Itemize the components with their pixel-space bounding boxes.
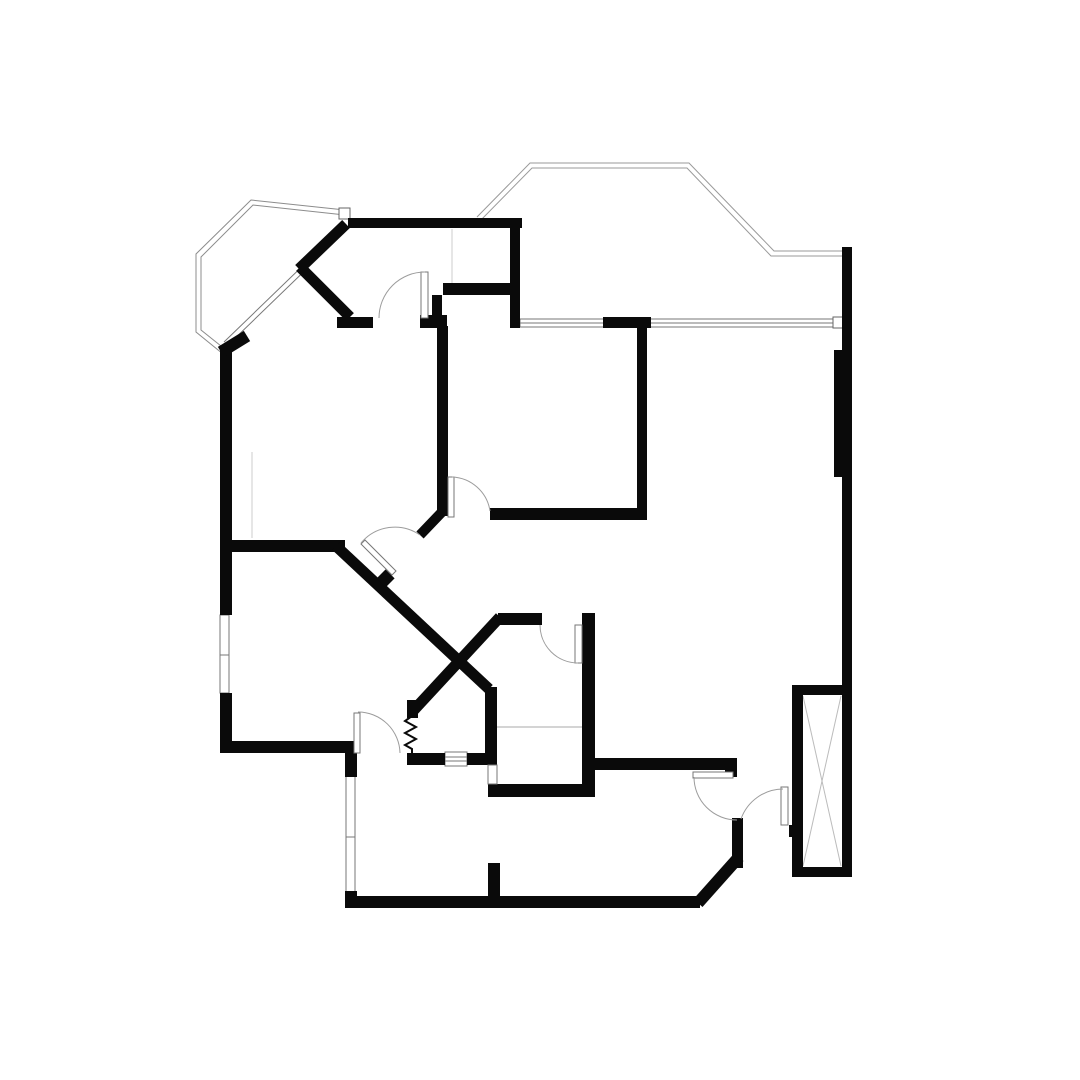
door-arc-lobby	[741, 789, 783, 819]
wall-room1-bottom	[222, 540, 345, 552]
wall-bedroom2-bottom	[490, 508, 647, 520]
terrace-outline-inner	[479, 168, 843, 256]
wall-corner-block-b	[432, 295, 442, 317]
door-arc-diag	[361, 527, 420, 543]
window-bottom-left	[346, 775, 355, 893]
wall-kitchen-top	[498, 613, 542, 625]
wall-top	[348, 218, 522, 228]
wall-bay-corner	[221, 336, 247, 352]
door-arc-bedroom2	[452, 477, 490, 511]
door-leaf-bedroom2	[448, 477, 454, 517]
door-arc-kitchen	[540, 625, 578, 663]
window-left	[220, 615, 229, 693]
door-leaf-living	[354, 713, 360, 753]
wall-bath-bottom	[488, 784, 595, 797]
door-arc-living	[358, 712, 400, 753]
wall-bedroom2-left	[437, 326, 448, 516]
bay-window-outline-outer	[196, 200, 345, 354]
wall-bedroom2-right	[637, 328, 647, 520]
wall-partition-stub	[488, 863, 500, 908]
wall-diag-a	[336, 546, 489, 689]
bay-outline-corner-cap	[339, 208, 350, 219]
stairbox-door-stub	[789, 825, 798, 837]
door-leaf-lobby	[781, 787, 788, 825]
wall-right-pilaster	[834, 350, 842, 477]
door-leaf-entry	[693, 772, 733, 778]
stairbox-wall-left	[792, 685, 803, 877]
wall-room2-bottom	[220, 741, 357, 753]
wall-dressing-right	[510, 218, 520, 328]
wall-entry-diag	[698, 857, 739, 903]
door-leaf-kitchen	[575, 625, 582, 663]
floor-plan-canvas	[0, 0, 1080, 1080]
wall-right	[842, 247, 852, 877]
diag-door-hinge-tick	[381, 574, 390, 583]
door-arc-bay-room	[379, 272, 425, 318]
wall-bottom	[345, 896, 700, 908]
wall-lower-right	[467, 753, 488, 765]
wall-window-pier	[603, 317, 651, 328]
wall-left-upper	[220, 349, 232, 615]
wall-diag-door-stub	[420, 512, 442, 535]
terrace-outline-outer	[477, 163, 843, 251]
plumbing-zigzag	[405, 716, 416, 753]
window-serving-hatch	[445, 752, 467, 766]
wall-diag-w2	[300, 267, 350, 317]
wall-dressing-bottom	[443, 283, 517, 295]
door-leaf-bay-room	[421, 272, 428, 318]
door-arc-entry	[694, 777, 737, 820]
floor-plan-svg	[0, 0, 1080, 1080]
wall-diag-w1	[299, 224, 346, 269]
bay-window-outline-inner	[201, 205, 345, 350]
wall-dining-top	[593, 758, 737, 770]
wall-lower-left	[407, 753, 445, 765]
stairbox-wall-bottom	[792, 867, 852, 877]
wall-bay-door	[337, 317, 373, 328]
stairbox-wall-top	[792, 685, 852, 695]
door-leaf-bath-pocket	[488, 765, 497, 784]
